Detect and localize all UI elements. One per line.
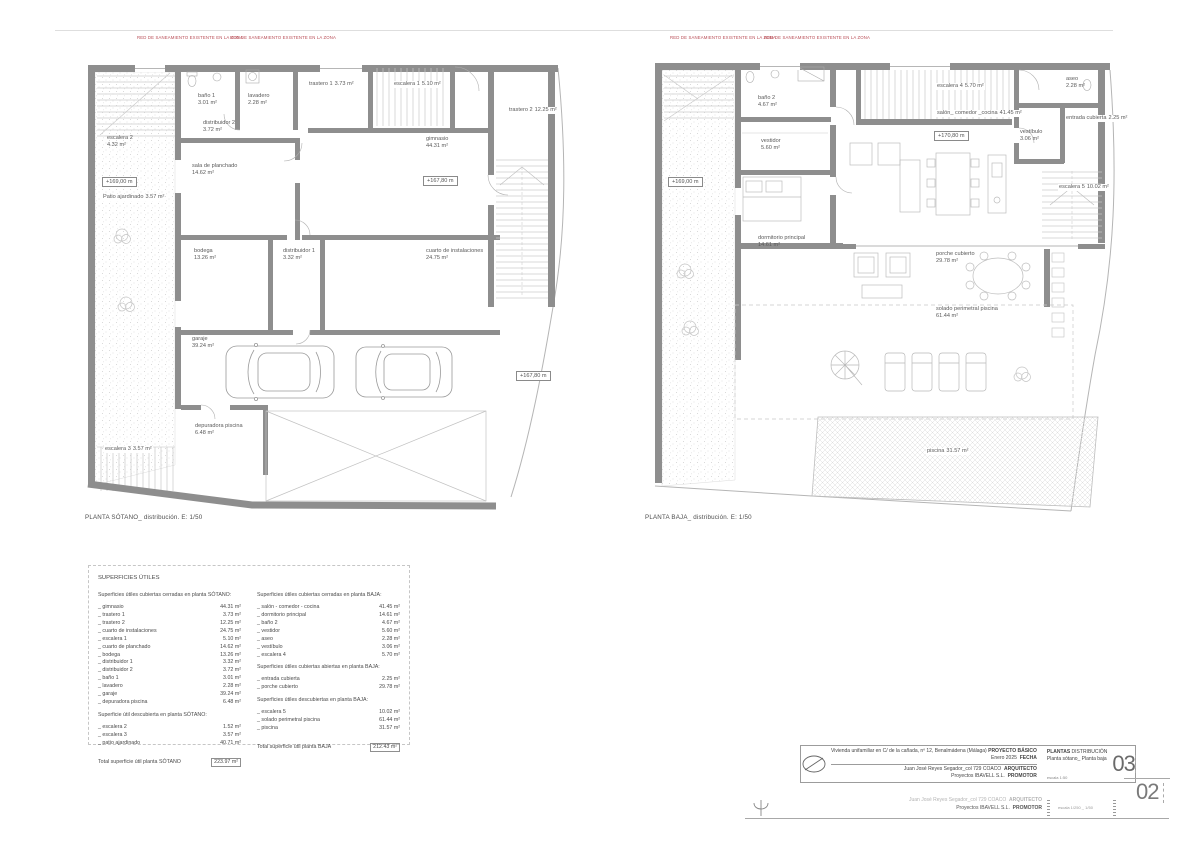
room-label: lavadero2.28 m² [248,93,269,108]
section-header: Superficie útil descubierta en planta SÓ… [98,712,241,719]
date-line: Enero 2025 FECHA [831,755,1037,762]
room-label: baño 13.01 m² [198,93,217,108]
number-dash [1135,755,1136,773]
architect-line: Juan José Reyes Segador_col 729 COACO AR… [830,797,1042,805]
room-label: Patio ajardinado3.57 m² [102,194,165,201]
level-marker: +167,80 m [423,176,458,186]
sheet-bottom-line [745,818,1169,819]
sheet-title: PLANTAS DISTRIBUCIÓN [1047,749,1107,756]
stair-hatches [375,68,548,300]
room-label: gimnasio44.31 m² [426,136,448,151]
sotano-caption: PLANTA SÓTANO_ distribución. E: 1/50 [85,514,202,521]
table-row: _ baño 24.67 m² [257,620,400,628]
architect-line: Juan José Reyes Segador_col 729 COACO AR… [831,766,1037,773]
total-label: Total superficie útil planta BAJA [257,744,331,750]
uncovered-cross-area [266,411,486,501]
table-row: _ trastero 13.73 m² [98,612,241,620]
table-row: _ escalera 33.57 m² [98,732,241,740]
level-marker: +170,80 m [934,131,969,141]
table-row: _ escalera 510.02 m² [257,709,400,717]
level-marker: +167,80 m [516,371,551,381]
room-label: sala de planchado14.62 m² [192,163,237,178]
table-row: _ gimnasio44.31 m² [98,604,241,612]
total-label: Total superficie útil planta SÓTANO [98,759,181,765]
total-value: 212.43 m² [370,743,400,752]
total-row: Total superficie útil planta SÓTANO 223.… [98,758,241,767]
room-label: dormitorio principal14.61 m² [758,235,805,250]
title-block-under-text: Juan José Reyes Segador_col 729 COACO AR… [830,797,1042,812]
baja-caption: PLANTA BAJA_ distribución. E: 1/50 [645,514,752,521]
interior-furniture [742,133,1006,221]
sheet-number: 03 [1112,746,1134,782]
table-row: _ cuarto de instalaciones24.75 m² [98,628,241,636]
room-label: vestidor5.60 m² [761,138,781,153]
surfaces-title: SUPERFICIES ÚTILES [98,575,400,581]
bath-fixtures [187,70,259,87]
table-row: _ vestíbulo3.06 m² [257,644,400,652]
room-label: escalera 510.02 m² [1058,184,1110,191]
room-label: trastero 13.73 m² [308,81,355,88]
table-row: _ salón - comedor - cocina41.45 m² [257,604,400,612]
architect-logo [801,746,827,782]
sheet-subtitle: Planta sótano_ Planta baja [1047,756,1107,763]
table-row: _ trastero 212.25 m² [98,620,241,628]
table-row: _ piscina31.57 m² [257,725,400,733]
title-block: Vivienda unifamiliar en C/ de la cañada,… [800,745,1136,783]
room-label: cuarto de instalaciones24.75 m² [426,248,483,263]
level-marker: +169,00 m [102,177,137,187]
table-row: _ escalera 21.52 m² [98,724,241,732]
number-dash [1163,783,1164,803]
planter-boxes [1052,253,1064,337]
table-row: _ depuradora piscina6.48 m² [98,699,241,707]
table-row: _ entrada cubierta2.25 m² [257,676,400,684]
surfaces-table: SUPERFICIES ÚTILES Superficies útiles cu… [88,565,410,745]
room-label: escalera 24.32 m² [107,135,133,150]
title-block-main: Vivienda unifamiliar en C/ de la cañada,… [827,746,1041,782]
divider [831,764,1037,765]
sanitation-note: RED DE SANEAMIENTO EXISTENTE EN LA ZONA [137,35,243,40]
room-label: distribuidor 23.72 m² [203,120,235,135]
table-row: _ aseo2.28 m² [257,636,400,644]
room-label: distribuidor 13.32 m² [283,248,315,263]
sanitation-note: RED DE SANEAMIENTO EXISTENTE EN LA ZONA [230,35,336,40]
sanitation-note: RED DE SANEAMIENTO EXISTENTE EN LA ZONA [670,35,776,40]
room-label: piscina31.57 m² [926,448,970,455]
room-label: escalera 15.10 m² [393,81,442,88]
table-row: _ porche cubierto29.78 m² [257,684,400,692]
room-label: solado perimetral piscina61.44 m² [936,306,998,321]
car-top-view [226,343,452,400]
table-row: _ distribuidor 23.72 m² [98,667,241,675]
sheet-number-under: 02 [1136,779,1158,805]
trident-icon [750,797,772,819]
room-label: salón_ comedor _cocina41.45 m² [936,110,1023,117]
scale-ruler [1047,800,1050,816]
solado-perimetral-boundary [735,305,1073,419]
patio-area [662,70,735,486]
table-row: _ solado perimetral piscina61.44 m² [257,717,400,725]
room-label: bodega13.26 m² [194,248,216,263]
pool-deck-furniture [831,351,986,391]
room-label: escalera 45.70 m² [936,83,985,90]
surfaces-col-sotano: Superficies útiles cubiertas cerradas en… [98,587,241,767]
sotano-plan-drawing [80,55,580,525]
north-symbol [750,797,772,824]
escalera1-stairs [375,68,448,126]
table-row: _ baño 13.01 m² [98,675,241,683]
room-label: garaje39.24 m² [192,336,214,351]
section-header: Superficies útiles descubiertas en plant… [257,697,400,704]
table-row: _ cuarto de planchado14.62 m² [98,644,241,652]
scale-note: escala 1:50 [1047,775,1107,780]
section-header: Superficies útiles cubiertas cerradas en… [257,592,400,599]
scale-note: escala 1/250 _ 1/50 [1058,805,1093,810]
section-header: Superficies útiles cubiertas abiertas en… [257,664,400,671]
piscina-pool [812,417,1098,507]
sanitation-note: RED DE SANEAMIENTO EXISTENTE EN LA ZONA [764,35,870,40]
baja-plan-drawing [640,55,1120,525]
room-label: escalera 33.57 m² [104,446,153,453]
table-row: _ vestidor5.60 m² [257,628,400,636]
plan-sotano: escalera 24.32 m² baño 13.01 m² lavadero… [80,55,580,525]
level-marker: +169,00 m [668,177,703,187]
table-row: _ escalera 45.70 m² [257,652,400,660]
scale-ruler [1113,800,1116,818]
room-label: entrada cubierta2.25 m² [1065,115,1128,122]
escalera2-stairs [97,69,175,139]
section-header: Superficies útiles cubiertas cerradas en… [98,592,241,599]
surfaces-col-baja: Superficies útiles cubiertas cerradas en… [257,587,400,767]
project-line: Vivienda unifamiliar en C/ de la cañada,… [831,748,1037,755]
table-row: _ dormitorio principal14.61 m² [257,612,400,620]
total-row: Total superficie útil planta BAJA 212.43… [257,743,400,752]
table-row: _ garaje39.24 m² [98,691,241,699]
table-row: _ lavadero2.28 m² [98,683,241,691]
total-value: 223.97 m² [211,758,241,767]
room-label: trastero 212.25 m² [508,107,558,114]
table-row: _ patio ajardinado40.71 m² [98,740,241,748]
stair-hatches [862,70,1102,243]
table-row: _ escalera 15.10 m² [98,636,241,644]
room-label: aseo2.28 m² [1066,76,1085,91]
promoter-line: Proyectos IBAVELL S.L. PROMOTOR [830,805,1042,813]
room-label: vestíbulo3.06 m² [1020,129,1042,144]
plan-baja: baño 24.67 m² escalera 45.70 m² aseo2.28… [640,55,1120,525]
crossed-circle-icon [801,754,827,774]
table-row: _ bodega13.26 m² [98,652,241,660]
sheet-title-cell: PLANTAS DISTRIBUCIÓN Planta sótano_ Plan… [1043,746,1110,782]
promoter-line: Proyectos IBAVELL S.L. PROMOTOR [831,773,1037,780]
room-label: porche cubierto29.78 m² [936,251,975,266]
table-row: _ distribuidor 13.32 m² [98,659,241,667]
sheet-border-line [55,30,1113,31]
patio-ajardinado-area [95,69,175,491]
drawing-sheet: { "sheet": { "red_note": "RED DE SANEAMI… [0,0,1200,848]
room-label: depuradora piscina6.48 m² [195,423,243,438]
room-label: baño 24.67 m² [758,95,777,110]
